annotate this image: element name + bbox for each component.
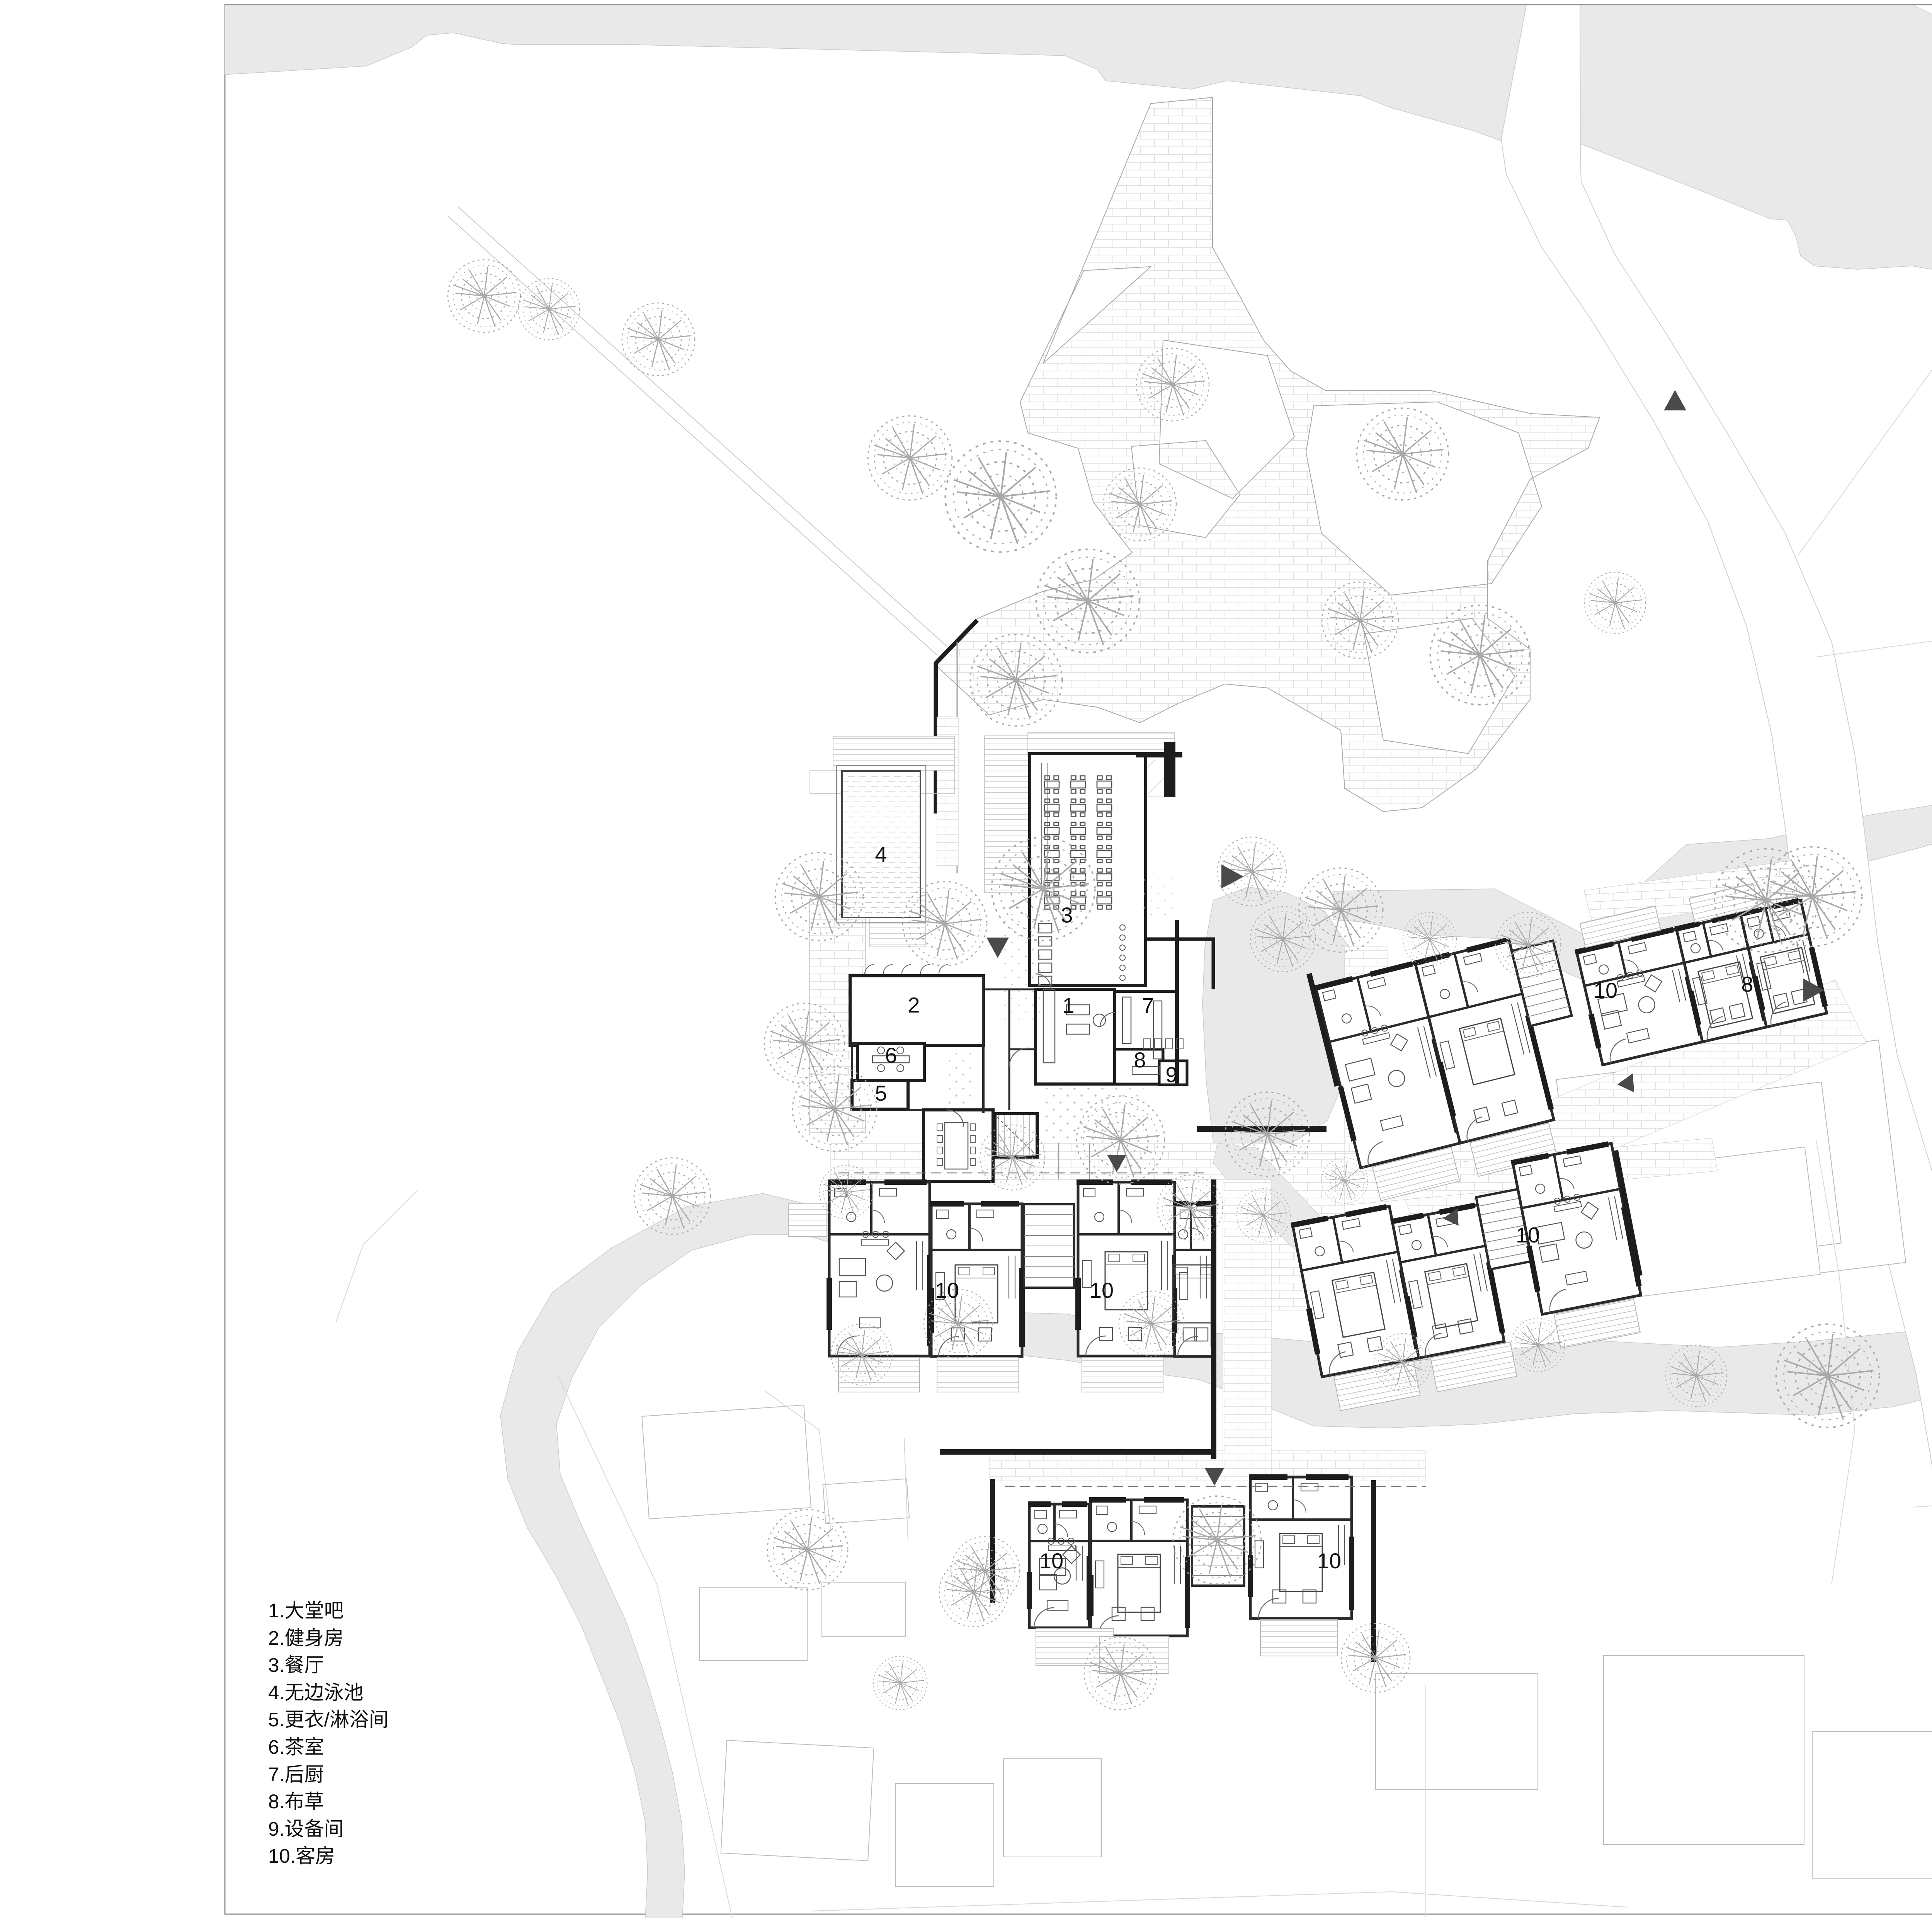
svg-text:10.客房: 10.客房	[268, 1845, 335, 1867]
svg-text:3.餐厅: 3.餐厅	[268, 1654, 324, 1676]
svg-text:3: 3	[1061, 903, 1073, 927]
svg-text:4.无边泳池: 4.无边泳池	[268, 1681, 364, 1704]
svg-text:8: 8	[1741, 972, 1753, 996]
svg-text:7.后厨: 7.后厨	[268, 1763, 324, 1785]
svg-text:8.布草: 8.布草	[268, 1790, 324, 1812]
svg-text:5: 5	[875, 1081, 887, 1105]
svg-text:1.大堂吧: 1.大堂吧	[268, 1600, 344, 1622]
svg-text:6: 6	[885, 1043, 897, 1067]
svg-text:10: 10	[1317, 1549, 1341, 1573]
svg-text:10: 10	[1039, 1549, 1063, 1573]
svg-text:5.更衣/淋浴间: 5.更衣/淋浴间	[268, 1709, 389, 1731]
svg-text:7: 7	[1142, 993, 1154, 1018]
svg-text:2.健身房: 2.健身房	[268, 1627, 344, 1649]
svg-text:2: 2	[908, 993, 920, 1017]
svg-text:8: 8	[1134, 1048, 1146, 1072]
svg-text:10: 10	[1594, 978, 1617, 1002]
svg-text:10: 10	[935, 1278, 959, 1302]
svg-text:10: 10	[1090, 1278, 1114, 1302]
svg-text:4: 4	[875, 842, 887, 866]
svg-text:9.设备间: 9.设备间	[268, 1818, 344, 1840]
svg-text:9: 9	[1165, 1062, 1177, 1087]
svg-text:6.茶室: 6.茶室	[268, 1736, 324, 1758]
svg-text:1: 1	[1062, 993, 1074, 1018]
svg-text:10: 10	[1516, 1223, 1540, 1247]
